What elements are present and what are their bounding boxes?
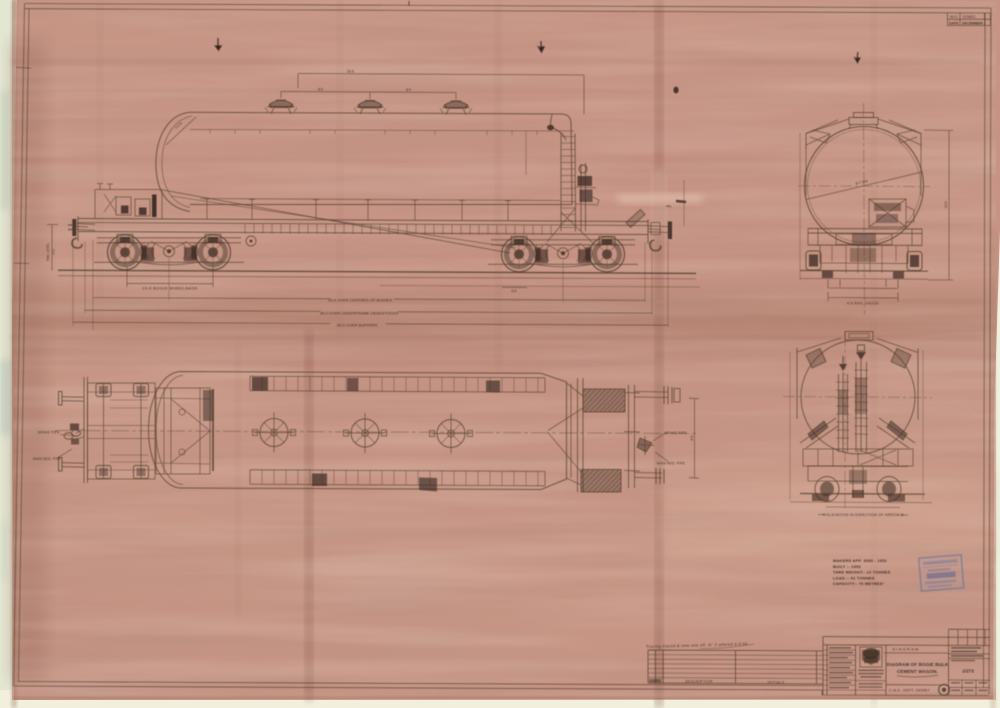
svg-text:BUILT :- 1953: BUILT :- 1953 (833, 564, 861, 569)
svg-text:4-8 RAIL GAUGE: 4-8 RAIL GAUGE (847, 302, 880, 306)
svg-text:8-6: 8-6 (690, 435, 694, 440)
svg-text:1/273: 1/273 (962, 669, 974, 674)
svg-text:RAIL LEVEL: RAIL LEVEL (46, 243, 50, 261)
svg-text:30-6 OVER CENTRES OF BOGIES: 30-6 OVER CENTRES OF BOGIES (328, 298, 392, 303)
svg-text:36-0 OVER UNDERFRAME HEADSTOCK: 36-0 OVER UNDERFRAME HEADSTOCKS (320, 310, 399, 315)
svg-text:BRAKE PIPE: BRAKE PIPE (665, 431, 687, 435)
svg-text:10-6 BOGIE WHEELBASE: 10-6 BOGIE WHEELBASE (142, 286, 198, 291)
svg-text:DECEMBER: DECEMBER (962, 22, 983, 26)
svg-text:MAIN RES. PIPE: MAIN RES. PIPE (657, 462, 686, 466)
svg-text:8-9: 8-9 (406, 88, 411, 92)
svg-text:½ ELEVATION IN DIRECTION OF AR: ½ ELEVATION IN DIRECTION OF ARROW B (822, 513, 904, 517)
svg-text:3-11: 3-11 (52, 249, 56, 255)
svg-text:E29822: E29822 (963, 15, 975, 19)
svg-text:12-6: 12-6 (944, 201, 948, 208)
svg-text:CAPACITY:- 70 METRES³: CAPACITY:- 70 METRES³ (833, 581, 885, 586)
svg-text:BRAKE PIPE: BRAKE PIPE (38, 431, 60, 435)
svg-text:INITIALS: INITIALS (768, 680, 785, 684)
svg-text:DATE: DATE (949, 22, 959, 26)
svg-text:DIAGRAM: DIAGRAM (892, 646, 919, 651)
svg-text:TARE WEIGHT:- 22 TONNES: TARE WEIGHT:- 22 TONNES (833, 570, 891, 575)
svg-text:32-6: 32-6 (347, 70, 354, 74)
svg-text:W.O.: W.O. (950, 15, 958, 19)
svg-text:C.M.E. DEPT. DERBY: C.M.E. DEPT. DERBY (889, 689, 930, 693)
svg-text:MAKERS APP. 3085 - 1952: MAKERS APP. 3085 - 1952 (833, 558, 888, 563)
svg-text:39-3 OVER BUFFERS: 39-3 OVER BUFFERS (337, 323, 378, 328)
svg-text:6-6: 6-6 (512, 289, 517, 293)
svg-text:LOAD :- 51 TONNES: LOAD :- 51 TONNES (833, 575, 875, 580)
svg-text:DESCRIPTION: DESCRIPTION (685, 680, 713, 684)
svg-text:CEMENT WAGON.: CEMENT WAGON. (897, 669, 938, 674)
svg-text:8-9: 8-9 (318, 88, 323, 92)
